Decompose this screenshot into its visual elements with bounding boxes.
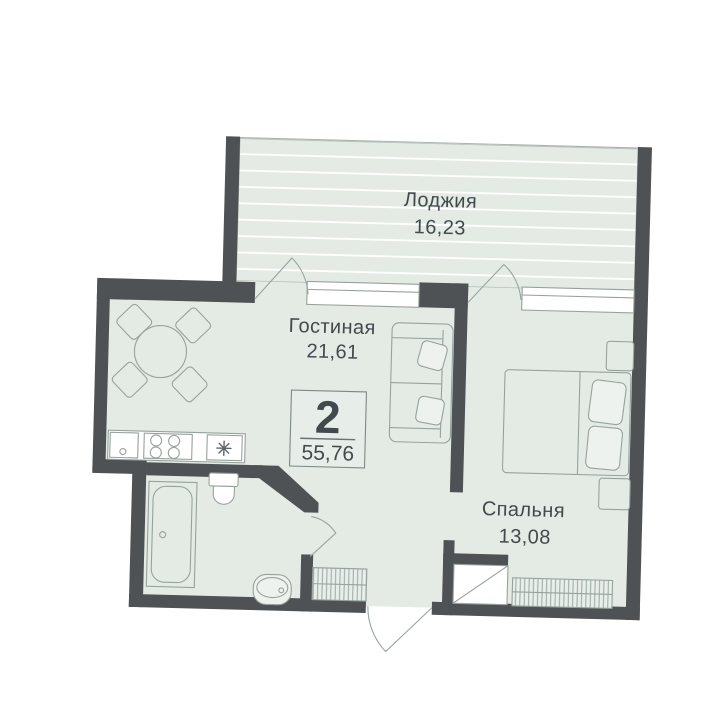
bedroom-area: 13,08 <box>498 525 551 548</box>
apartment-badge: 2 55,76 <box>290 390 367 468</box>
loggia-label: Лоджия <box>404 189 478 213</box>
wall-living-top <box>97 278 255 303</box>
bed-pillow-icon <box>585 426 623 471</box>
toilet-tank <box>209 473 238 487</box>
bedroom-label: Спальня <box>482 498 566 522</box>
bathtub-icon <box>146 481 197 587</box>
loggia-area <box>222 137 652 291</box>
nightstand-icon <box>598 478 630 510</box>
dining-table-icon <box>134 325 187 378</box>
bed-pillow-icon <box>588 379 627 425</box>
badge-rooms-count: 2 <box>314 391 341 444</box>
wash-basin-icon <box>253 574 292 605</box>
kitchen-block <box>108 430 246 463</box>
window-living <box>307 281 420 307</box>
living-room-label: Гостиная <box>288 315 376 339</box>
sofa <box>389 323 453 444</box>
nightstand-icon <box>606 341 634 371</box>
floor-plan: Лоджия 16,23 Гостиная 21,61 Спальня 13,0… <box>0 0 726 726</box>
window-bedroom <box>522 287 635 313</box>
loggia-area: 16,23 <box>413 216 466 239</box>
badge-total-area: 55,76 <box>301 441 354 465</box>
loggia-floor <box>236 139 638 291</box>
toilet-icon <box>213 486 234 505</box>
floor-plan-canvas: Лоджия 16,23 Гостиная 21,61 Спальня 13,0… <box>0 0 726 726</box>
living-room-area: 21,61 <box>306 340 359 363</box>
wall-shaft-left <box>442 540 455 615</box>
sofa-pillow-icon <box>415 395 445 425</box>
asterisk-icon <box>217 441 231 455</box>
wall-shaft-top <box>443 553 508 566</box>
